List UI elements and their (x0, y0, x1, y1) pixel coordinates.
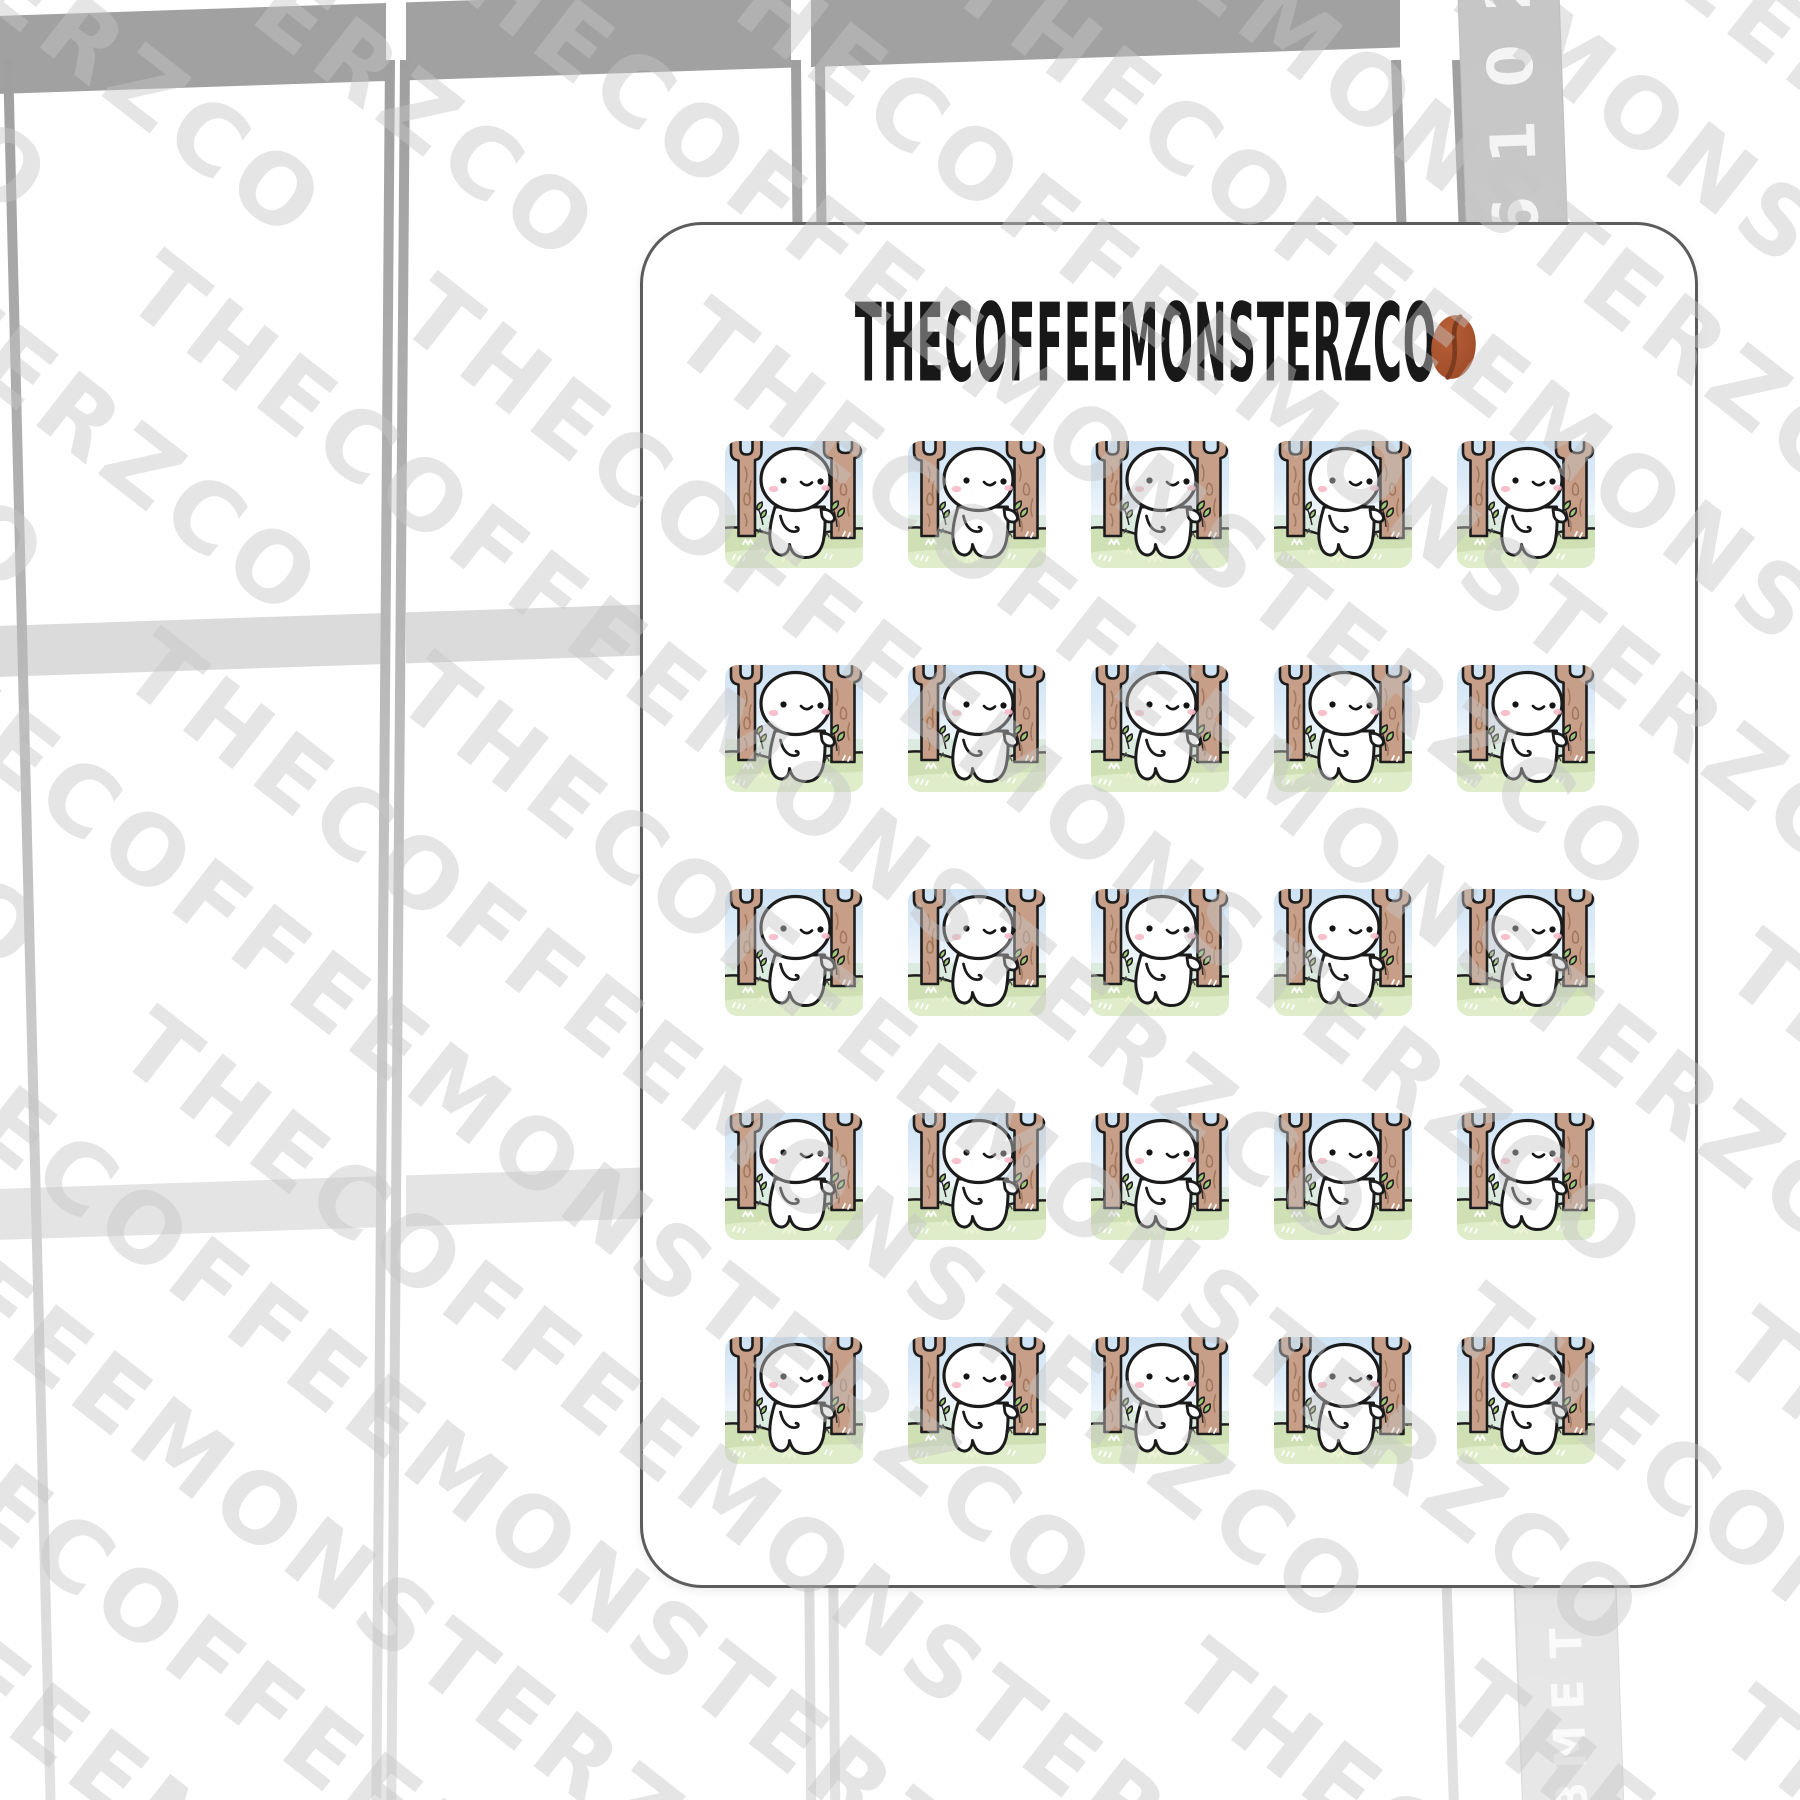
sticker (1274, 441, 1412, 568)
planner-week-band (0, 613, 386, 679)
sticker-grid (725, 441, 1595, 1464)
sticker (1091, 1337, 1229, 1464)
sticker (1091, 665, 1229, 792)
sticker (1091, 889, 1229, 1016)
sticker (725, 441, 863, 568)
sticker (1457, 1337, 1595, 1464)
planner-week-band (0, 1176, 386, 1242)
brand-title: THECOFFEEMONSTERZCO (855, 289, 1437, 397)
planner-header-bar (811, 0, 1400, 67)
sticker (725, 1337, 863, 1464)
sticker (908, 441, 1046, 568)
planner-header-bar (0, 3, 386, 96)
coffee-bean-icon (1425, 310, 1482, 383)
sticker (1274, 1113, 1412, 1240)
sticker (1274, 665, 1412, 792)
sticker (908, 1337, 1046, 1464)
sticker (725, 889, 863, 1016)
sticker (1457, 1113, 1595, 1240)
sticker (1457, 889, 1595, 1016)
sticker (1274, 889, 1412, 1016)
washi-month-text: TEMB (1517, 1615, 1624, 1800)
sticker (908, 889, 1046, 1016)
sticker (1457, 441, 1595, 568)
sticker (1457, 665, 1595, 792)
sticker (1274, 1337, 1412, 1464)
sheet-header: THECOFFEEMONSTERZCO (643, 291, 1695, 395)
sticker (725, 665, 863, 792)
planner-header-bar (406, 0, 791, 80)
sticker (1091, 1113, 1229, 1240)
sticker-sheet: THECOFFEEMONSTERZCO (640, 222, 1698, 1588)
sticker (725, 1113, 863, 1240)
product-photo: 2016/9/2 TEMB THECOFFEEMONSTERZCO (0, 0, 1800, 1800)
sticker (908, 1113, 1046, 1240)
sticker (908, 665, 1046, 792)
sticker (1091, 441, 1229, 568)
